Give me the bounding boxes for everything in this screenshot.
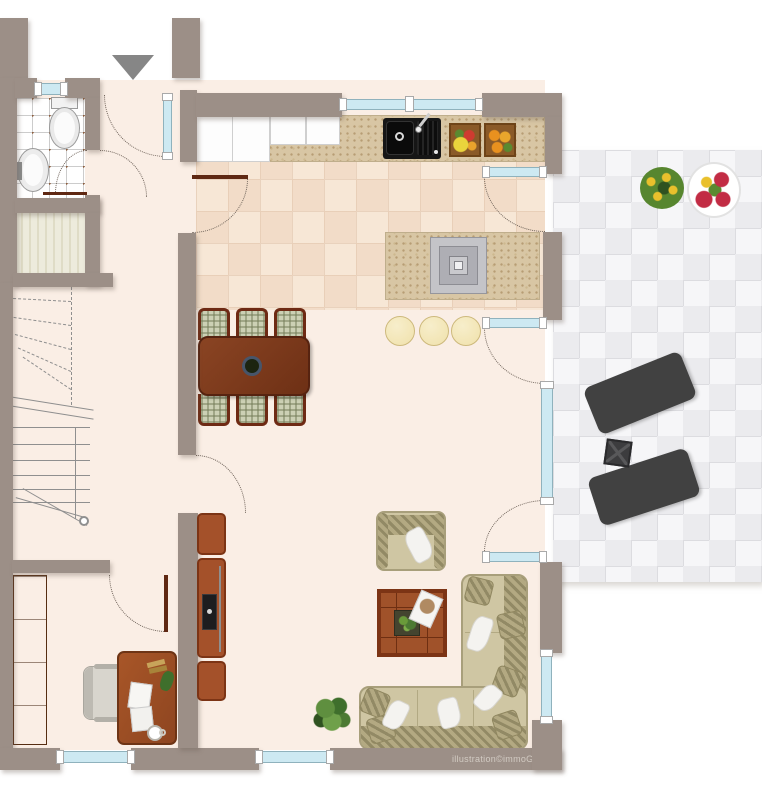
bar-stool	[451, 316, 481, 346]
dining-chair	[236, 394, 268, 426]
sink-drain	[395, 132, 404, 141]
terrace-side-table	[603, 438, 632, 467]
wall	[0, 283, 13, 750]
living-fixed-window	[541, 383, 553, 503]
stair-newel-post	[79, 516, 89, 526]
table-centerpiece	[242, 356, 262, 376]
wall-with-watermark: illustration©immoGrafik	[330, 748, 562, 770]
bar-stool	[385, 316, 415, 346]
desk-cup-handle	[159, 729, 166, 736]
cooktop	[430, 237, 487, 294]
potted-plant	[310, 690, 354, 736]
armchair-arm	[378, 513, 388, 569]
wardrobe	[13, 575, 47, 745]
bar-stool	[419, 316, 449, 346]
sofa-seat-seam	[473, 690, 474, 728]
wall	[172, 18, 200, 78]
stair-tread	[13, 475, 90, 476]
wall	[0, 18, 28, 80]
stair-edge	[71, 287, 72, 405]
wall	[0, 748, 60, 770]
kitchen-cabinet-white	[232, 115, 270, 162]
floor-storage-room	[15, 213, 85, 273]
living-bottom-window	[257, 751, 332, 763]
kitchen-sink-unit	[383, 118, 441, 159]
dining-chair	[274, 394, 306, 426]
stair-tread	[13, 444, 90, 445]
wall	[15, 198, 100, 213]
staircase	[13, 287, 90, 537]
living-terrace-door-leaf-lower	[484, 552, 545, 562]
wall	[180, 90, 197, 162]
living-terrace-door-leaf-upper	[484, 318, 545, 328]
tv-sideboard-segment	[197, 661, 226, 701]
fruit-crate-oranges	[484, 123, 516, 157]
front-door-leaf	[163, 95, 172, 158]
desk-pad	[158, 670, 176, 693]
dining-chair	[198, 394, 230, 426]
tv-sideboard-segment	[197, 513, 226, 555]
kitchen-door-leaf	[192, 175, 248, 179]
wall	[13, 273, 113, 287]
kitchen-cabinet-white	[270, 115, 306, 145]
kitchen-terrace-door-leaf	[484, 167, 545, 177]
wall	[131, 748, 259, 770]
sofa-seat-seam	[417, 690, 418, 728]
toilet-bowl	[49, 107, 80, 149]
flower-pot-yellow	[640, 167, 684, 209]
study-window	[58, 751, 133, 763]
sink-knob	[434, 150, 438, 154]
wall	[65, 78, 100, 98]
entrance-arrow-icon	[112, 55, 154, 80]
cooktop-center	[454, 261, 463, 270]
sink-faucet-base	[415, 126, 422, 133]
bathroom-rail	[43, 192, 87, 195]
stair-stringer	[75, 427, 76, 519]
stair-tread	[13, 298, 71, 302]
armchair-arm	[434, 513, 444, 569]
stair-tread	[13, 317, 71, 326]
window-post	[405, 96, 414, 112]
desk	[117, 651, 177, 745]
wall	[532, 720, 562, 770]
fruit-crate-bananas	[449, 123, 481, 157]
wall	[482, 93, 562, 117]
wall	[540, 562, 562, 653]
kitchen-cabinet-white	[306, 115, 340, 145]
wall	[178, 513, 198, 748]
wall	[178, 233, 196, 455]
wall	[545, 117, 562, 174]
wall	[85, 98, 100, 150]
soundbar-line	[219, 566, 221, 652]
tv-sideboard-segment	[197, 558, 226, 658]
stair-tread	[23, 488, 88, 526]
study-door-leaf	[164, 575, 168, 632]
sofa-pillow	[496, 610, 527, 641]
flower-pot-red	[687, 162, 741, 218]
tv-screen-dot	[207, 609, 212, 614]
wall	[0, 78, 17, 285]
office-chair-back	[84, 667, 93, 719]
wall	[543, 232, 562, 320]
wall	[196, 93, 342, 117]
floor-plan: illustration©immoGrafik	[0, 0, 762, 800]
stair-tread	[13, 502, 90, 503]
stair-tread	[15, 334, 71, 350]
stair-tread	[13, 427, 90, 428]
living-right-window	[541, 651, 552, 722]
wall	[12, 560, 110, 573]
stair-tread	[13, 460, 90, 461]
bathroom-window	[36, 83, 66, 95]
watermark-text: illustration©immoGrafik	[330, 748, 562, 770]
